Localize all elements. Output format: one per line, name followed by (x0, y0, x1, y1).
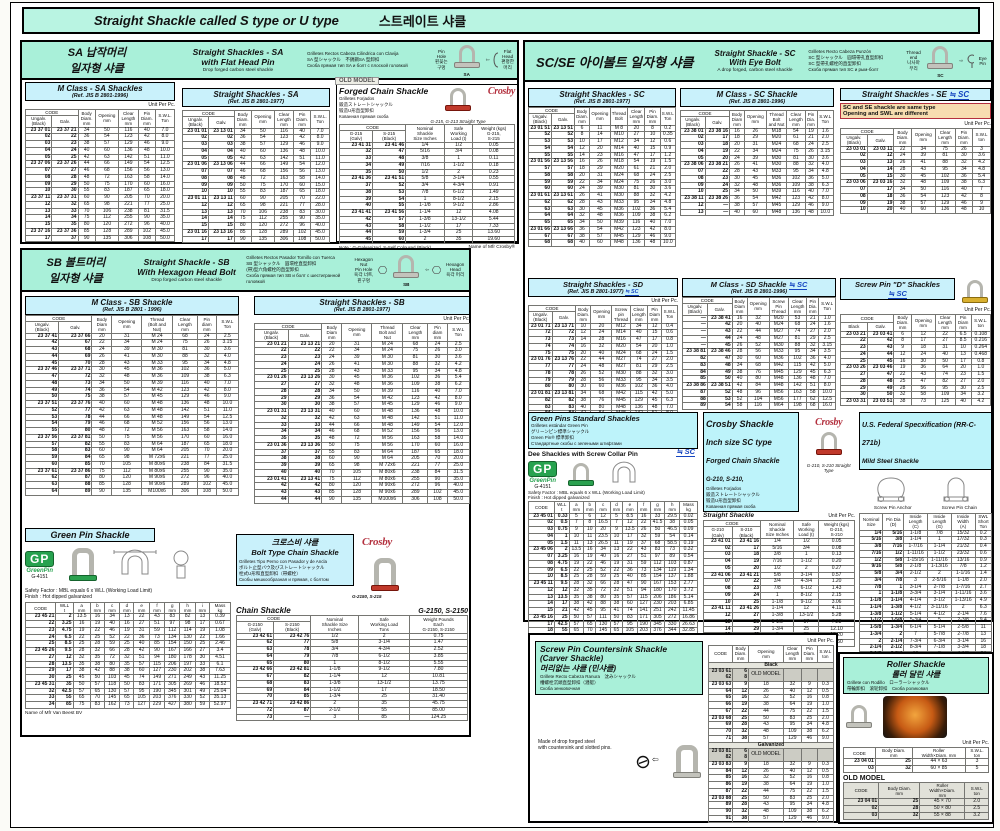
sa-diagram: Pin Hole 핀꽂는 구멍 SA ⇦ Flat Head 편평한 머리 (432, 42, 517, 78)
unit-label: Unit Per Pc. (828, 513, 855, 519)
sb-m-class-ref: (Ref. JIS B 2801 - 1996) (28, 307, 236, 313)
unit-label: Unit Per Pc. (254, 316, 470, 322)
green-pins-std-table: CODEWLL ta mmb mmc mmd mme mmf mmg mmh m… (528, 501, 698, 635)
eye-pin-label: Eye Pin (977, 56, 988, 66)
green-pin-logo: GP (528, 461, 557, 477)
m-class-sc-block: M Class - SC Shackle(Ref. JIS B 2801-199… (680, 88, 834, 216)
crosby-inch-title: Crosby Shackle (706, 419, 774, 429)
sb-material: Drop forged carbon steel shackle (133, 278, 240, 283)
forged-chain-table: CODENominal Shackle Size InchesSafe Work… (339, 124, 515, 244)
unit-label: Unit Per Pc. (708, 638, 834, 644)
se-approx: ≒ SC (949, 90, 969, 100)
green-pins-std-subtitle: Dee Shackles with Screw Collar Pin (528, 451, 698, 458)
page-banner: Straight Shackle called S type or U type… (22, 7, 980, 34)
green-pins-std-block: Green Pins Standard Shackles Grilletes e… (528, 412, 698, 640)
crosby-inch-table: CODENominal Shackle Size InchesSafe Work… (703, 520, 855, 647)
crosby-inch-title2: Inch size SC type (706, 438, 772, 447)
scse-title: Straight Shackle - SC With Eye Bolt (708, 49, 803, 67)
dimension-diagram (605, 460, 645, 490)
sb-straight-table: CODEBody Diam mmOpening mmThread Bolt an… (254, 323, 470, 504)
unit-label: Unit Per Pc. (840, 121, 991, 127)
hexagon-nut-icon (378, 264, 387, 276)
green-pin-mfr: Name of Mfr Van Beest BV (25, 711, 231, 716)
sa-m-class-ref: (Ref. JIS B 2801-1996) (28, 93, 172, 99)
flat-head-label: Flat Head 편평한 머리 (501, 49, 514, 71)
hexagon-head-icon (432, 264, 441, 276)
sc-table: CODEBody Diam. mmOpening mmThread BoltCl… (528, 107, 676, 247)
crosby-inch-subtitle: Forged Chain Shackle (706, 458, 780, 465)
bolt-type-shackle-icon (374, 558, 396, 590)
bolt-type-block: 크로스비 샤클 Bolt Type Chain Shackle Grillete… (236, 534, 354, 586)
screw-pin-d-block: Screw Pin "D" Shackles≒ SC Unit Per Pc. … (840, 278, 991, 406)
pin-hole-label: Pin Hole 핀꽂는 구멍 (435, 49, 448, 71)
roller-langs: Grillete con Rodillo ローラーシャックル 帶輪卸扣 滚轮卸扣… (847, 680, 985, 692)
sb-m-class-block: M Class - SB Shackle(Ref. JIS B 2801 - 1… (25, 296, 239, 496)
green-pins-std-title: Green Pins Standard Shackles (531, 414, 640, 423)
hex-head-label: Hexagon Head 육각 머리 (444, 262, 466, 278)
chain-shackle-table: CODENominal Shackle Size InchesSafe Work… (236, 615, 468, 721)
m-class-sd-table: CODEBody Diam mmOpening mmScrew Pin Thre… (682, 297, 836, 410)
carver-title-box: Screw Pin Countersink Shackle (Carver Sh… (535, 641, 703, 695)
sb-title: Straight Shackle - SB With Hexagon Head … (133, 257, 240, 277)
green-pin-block: Green Pin Shackle GP GreenPin G-4151 Saf… (25, 528, 231, 716)
sa-m-class-title: M Class - SA Shackles (57, 84, 142, 93)
unit-label: Unit Per Pc. (843, 740, 989, 746)
green-pin-finish: Finish : Hot dipped galvanized (25, 594, 231, 600)
sa-m-class-block: M Class - SA Shackles(Ref. JIS B 2801-19… (25, 82, 175, 242)
m-class-sd-block: M Class - SD Shackle ≒ SC(Ref. JIS B 280… (682, 278, 836, 410)
se-title: Straight Shackles - SE (862, 90, 947, 99)
thread-end-label: Thread end 나사마무리 (906, 50, 922, 72)
se-table: CODEBody Diam. mmOpening mmClear Length … (840, 128, 991, 214)
green-pin-model: G-4151 (25, 574, 54, 580)
sb-section-panel: SB 볼트머리 일자형 샤클 Straight Shackle - SB Wit… (20, 248, 471, 737)
us-federal-block: U.S. Federal Specxification (RR-C-271b) … (859, 412, 992, 659)
us-federal-table: Nominal SizePin Dia (D)Inside Length (C)… (859, 513, 992, 659)
sc-block: Straight Shackles - SC(Ref. JIS B 2801-1… (528, 88, 676, 247)
sb-m-class-table: CODEBody Diam mmOpening mmThread (Bolt a… (25, 315, 239, 496)
crosby-logo: Crosby (488, 86, 515, 97)
crosby-inch-caption: G-210, S-210 Straight Type (802, 463, 855, 473)
sa-m-class-table: CODEBody Diam. mmOpening mmClear Length … (25, 109, 175, 242)
sc-shape-label: SC (937, 73, 943, 78)
sa-langs: Grilletes Rectos Cabeza Cilindrica con C… (304, 50, 432, 70)
green-pin-shackle-icon (573, 463, 589, 485)
sc-title: Straight Shackles - SC (559, 90, 644, 99)
carver-title: Screw Pin Countersink Shackle (540, 644, 698, 654)
sb-straight-block: Straight Shackles - SB(Ref. JIS B 2801-1… (254, 296, 470, 504)
page-title-korean: 스트레이트 샤클 (379, 11, 466, 30)
se-block: Straight Shackles - SE ≒ SC SC and SE sh… (840, 88, 991, 214)
pin-diagram (168, 548, 194, 582)
dee-shackle-diagram (942, 472, 970, 506)
crosby-logo: Crosby (815, 417, 842, 428)
carver-korean: 머리없는 샤클 (민샤클) (540, 663, 698, 674)
screw-pin-d-table: CODEBody Diam. mmOpening mmClear Length … (840, 314, 991, 406)
scse-korean-title: SC/SE 아이볼트 일자형 샤클 (525, 51, 705, 72)
sb-straight-ref: (Ref. JIS B 2801-1977) (257, 307, 467, 313)
forged-chain-panel: OLD MODEL Forged Chain Shackle Grilletes… (336, 84, 518, 242)
flat-head-pin-icon (493, 52, 499, 68)
green-pins-std-approx: ≒ SC (676, 447, 695, 457)
sd-approx: ≒ SC (625, 289, 639, 296)
bolt-type-caption: G-2150, S-215 (352, 594, 382, 599)
crosby-inch-model: G-210, S-210, (706, 477, 744, 483)
carver-note: Made of drop forged steel with countersi… (538, 739, 658, 751)
shackle-icon (932, 46, 948, 68)
chain-shackle-model: G-2150, S-2150 (418, 608, 468, 615)
roller-korean: 롤러 달린 샤클 (847, 669, 985, 680)
arrow-left-icon: ⇦ (486, 57, 490, 63)
old-model-tag: OLD MODEL (335, 77, 379, 85)
screw-pin-d-approx: ≒ SC (888, 289, 907, 299)
roller-panel: Roller Shackle 롤러 달린 샤클 Grillete con Rod… (838, 652, 994, 824)
roller-title: Roller Shackle (847, 659, 985, 669)
dimension-diagram (112, 548, 158, 582)
carver-table-block: Unit Per Pc. CODEBody Diam. mmOpening mm… (708, 637, 834, 823)
m-class-sc-ref: (Ref. JIS B 2801-1996) (683, 99, 831, 105)
roller-old-model-label: OLD MODEL (843, 775, 989, 782)
green-pin-title: Green Pin Shackle (50, 530, 129, 540)
roller-shackle-icon (851, 705, 867, 727)
sb-m-class-title: M Class - SB Shackle (92, 298, 173, 307)
sa-korean-title: SA 납작머리 일자형 샤클 (22, 43, 172, 77)
screw-pin-shackle-icon (967, 280, 983, 302)
sa-straight-table: CODEBody Diam. mmOpening mmClear Length … (182, 110, 330, 243)
green-pin-table: CODEWLL ta mmb mmc mmd mme mmf mmg mmh m… (25, 602, 231, 709)
sb-langs: Grilletes Rectos Pasador Tornillo con Tu… (243, 254, 349, 286)
m-class-sd-approx: ≒ SC (789, 280, 808, 290)
sa-straight-title: Straight Shackles - SA (213, 90, 298, 99)
m-class-sd-title: M Class - SD Shackle (711, 280, 787, 289)
green-pin-shackle-icon (72, 548, 94, 580)
scse-section-panel: SC/SE 아이볼트 일자형 샤클 Straight Shackle - SC … (523, 40, 993, 622)
bolt-type-title: Bolt Type Chain Shackle (239, 548, 351, 557)
us-federal-subtitle: Mild Steel Shackle (862, 458, 919, 465)
chain-shackle-block: Chain Shackle G-2150, S-2150 CODENominal… (236, 606, 468, 721)
arrow-right-icon: ⇨ (959, 58, 963, 64)
scse-diagram: Thread end 나사마무리 SC ⇨ Eye Pin (903, 43, 991, 79)
page-title: Straight Shackle called S type or U type (94, 13, 339, 28)
carver-langs: Grillete Recto Cabeza Ranura 沈みシャックル 槽螺栓… (540, 674, 698, 692)
chain-shackle-title: Chain Shackle (236, 606, 291, 615)
sa-shape-label: SA (464, 72, 470, 77)
forged-chain-title: Forged Chain Shackle (339, 86, 428, 96)
sa-title: Straight Shackles - SA with Flat Head Pi… (175, 47, 301, 67)
green-pins-std-langs: Grilletes estándar Green Pin グリーンピン標準シャッ… (531, 423, 695, 447)
us-federal-title: U.S. Federal Specxification (RR-C-271b) (862, 422, 976, 447)
roller-old-model-table: CODEBody Diam. mmRoller Width×Diam. mmS.… (843, 782, 989, 820)
roller-table: CODEBody Diam. mmRoller Width×Diam. mmS.… (843, 747, 989, 773)
sd-title: Straight Shackles - SD (563, 280, 643, 289)
crosby-inch-block: Crosby Shackle Inch size SC type Forged … (703, 412, 855, 657)
crosby-shackle-icon (821, 432, 837, 454)
m-class-sc-table: CODEBody Diam mmOpening mmThread Bolt an… (680, 110, 834, 216)
eye-pin-icon (966, 54, 974, 68)
carver-table: CODEBody Diam. mmOpening mmClear Length … (708, 645, 834, 823)
green-pins-std-finish: Finish : Hot dipped galvanized (528, 495, 698, 500)
crosby-inch-langs: Grilletes Forjados 鍛造ストレートシャックル 锻造U形直型卸扣… (706, 486, 796, 510)
sc-ref: (Ref. JIS B 2801-1977) (531, 99, 673, 105)
screw-pin-anchor-caption: Screw Pin Anchor (874, 506, 912, 511)
unit-label: Unit Per Pc. (840, 307, 991, 313)
forged-chain-shackle-icon (450, 88, 466, 110)
sa-section-panel: SA 납작머리 일자형 샤클 Straight Shackles - SA wi… (20, 40, 519, 244)
arrow-left-icon: ⇦ (425, 267, 429, 273)
roller-shackle-photo (883, 696, 947, 738)
sd-ref: (Ref. JIS B 2801-1977) (567, 289, 623, 295)
m-class-sd-ref: (Ref. JIS B 2801-1996) (685, 289, 833, 295)
bolt-type-langs: Grilletes Tipo Perno con Pasador y de An… (239, 559, 351, 583)
crosby-inch-label: Straight Shackle (703, 512, 754, 519)
roller-title-box: Roller Shackle 롤러 달린 샤클 Grillete con Rod… (843, 657, 989, 694)
forged-chain-mfr: Name of Mfr Crosby® (469, 245, 515, 250)
unit-label: Unit Per Pc. (25, 102, 175, 108)
carver-shackle-icon (676, 745, 698, 777)
sa-straight-block: Straight Shackles - SA(Ref. JIS B 2801-1… (182, 88, 330, 243)
sb-diagram: Hexagon Nut Pin Hole 육각 너트,핀구멍 SB ⇦ Hexa… (349, 252, 469, 288)
bow-shackle-diagram (874, 472, 908, 506)
shackle-icon (398, 255, 414, 277)
arrow-left-icon: ⇦ (652, 755, 659, 764)
forged-chain-langs: Grilletes Forjados 鍛造ストレートシャックル 锻造U形直型卸扣… (339, 96, 428, 120)
sa-material: Drop forged carbon steel shackle (175, 68, 301, 73)
se-note: SC and SE shackle are same type Opening … (840, 103, 991, 119)
unit-label: Unit Per Pc. (528, 298, 678, 304)
m-class-sc-title: M Class - SC Shackle (717, 90, 798, 99)
carver-panel: Screw Pin Countersink Shackle (Carver Sh… (528, 633, 838, 823)
forged-chain-caption: G-215, G-213 Straight Type (430, 119, 485, 124)
slotted-pin-icon (636, 755, 650, 769)
scse-material: A drop forged, carbon steel shackle (708, 68, 803, 73)
sb-shape-label: SB (403, 282, 409, 287)
shackle-icon (459, 45, 475, 67)
sa-straight-ref: (Ref. JIS B 2801-1977) (185, 99, 327, 105)
carver-title2: (Carver Shackle) (540, 654, 698, 663)
hex-nut-label: Hexagon Nut Pin Hole 육각 너트,핀구멍 (352, 257, 375, 284)
sb-straight-title: Straight Shackles - SB (319, 298, 404, 307)
bolt-type-korean: 크로스비 샤클 (239, 537, 351, 548)
scse-langs: Grilletes Recto Cabeza Punzón SC 型シャックル … (805, 48, 902, 74)
screw-pin-d-title: Screw Pin "D" Shackles (855, 280, 940, 289)
screw-pin-chain-caption: Screw Pin Chain (942, 506, 977, 511)
sb-korean-title: SB 볼트머리 일자형 샤클 (22, 253, 130, 287)
crosby-logo: Crosby (362, 536, 392, 548)
green-pin-logo: GP (25, 551, 54, 567)
